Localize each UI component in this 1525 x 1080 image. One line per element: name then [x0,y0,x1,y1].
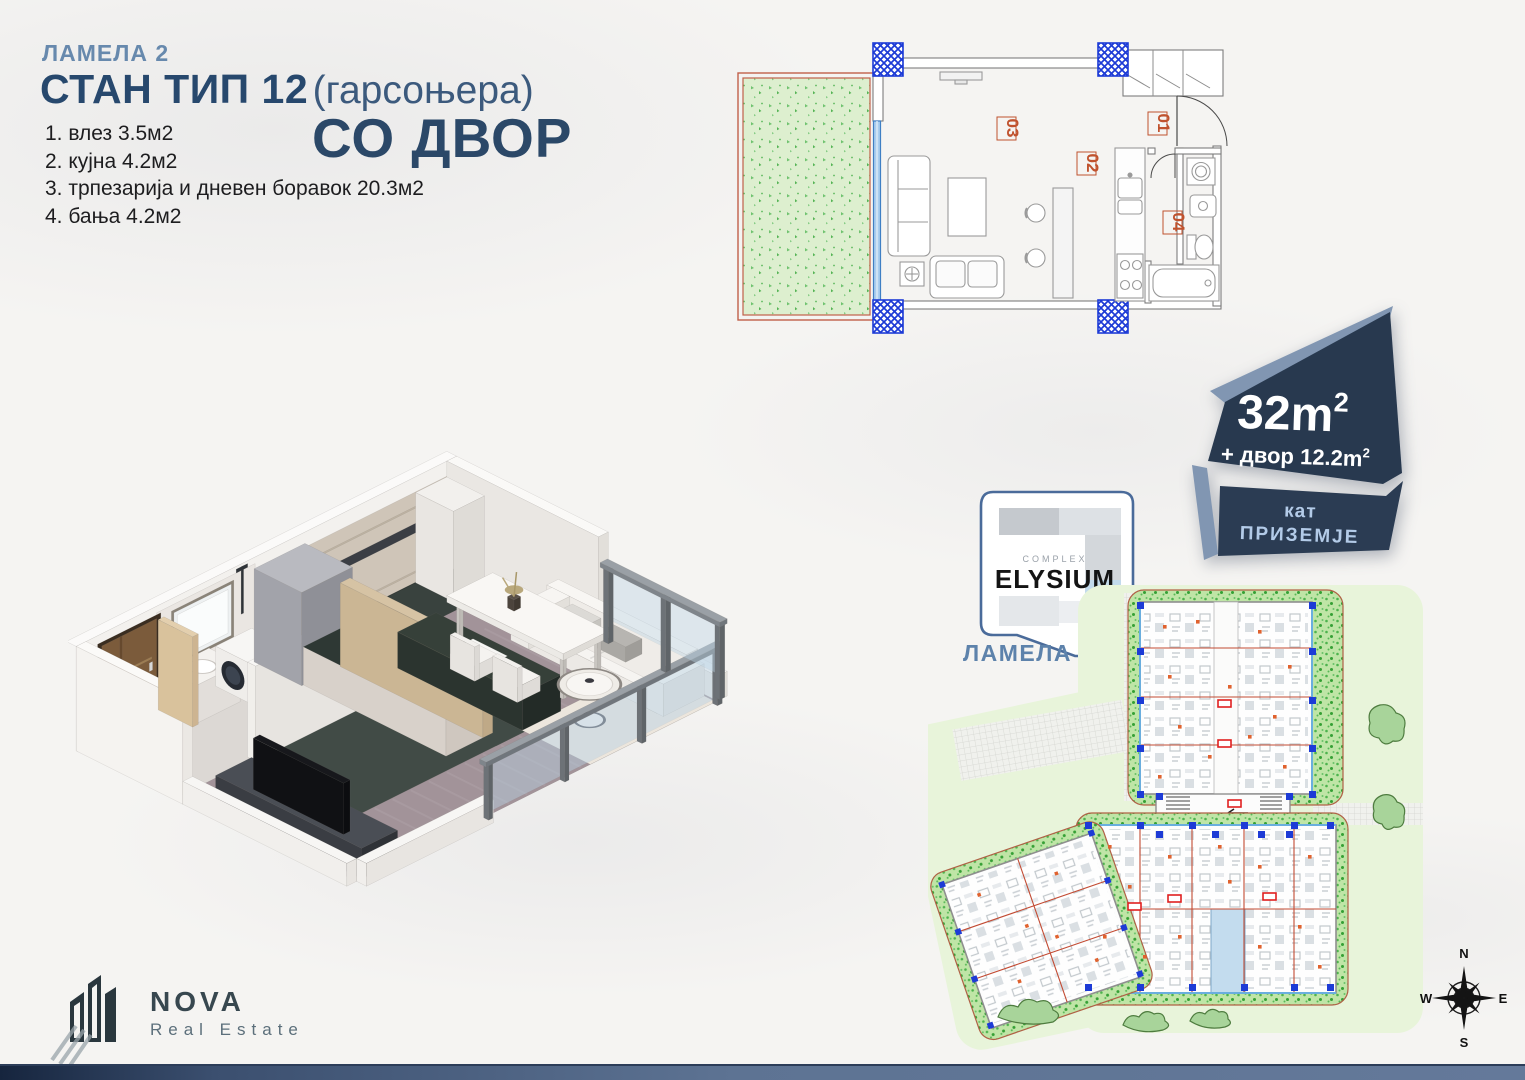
floorplan-furniture [888,72,1219,301]
brand-logo-icon [48,962,148,1067]
compass-n: N [1459,946,1468,961]
svg-text:кат: кат [1284,501,1317,523]
siteplan [928,585,1428,1050]
render-3d-isometric [68,352,738,942]
area-badge: 32m2 + двор 12.2m2 кат ПРИЗЕМЈЕ [1180,298,1425,573]
compass-star [1432,966,1496,1030]
svg-text:03: 03 [1003,119,1022,138]
entry-door [1177,96,1227,146]
apartment-type-title: СТАН ТИП 12 [40,66,308,112]
svg-text:01: 01 [1154,114,1173,133]
bathroom-door [1151,154,1175,178]
room-list-item: 1. влез 3.5м2 [45,120,424,148]
footer-bar [0,1064,1525,1080]
yard-area [738,73,875,320]
svg-text:04: 04 [1169,213,1188,232]
subject-unit-highlight [1211,909,1245,993]
room-list-item: 2. кујна 4.2м2 [45,148,424,176]
svg-text:+ двор 12.2m2: + двор 12.2m2 [1221,440,1371,471]
svg-text:02: 02 [1083,154,1102,173]
compass-e: E [1499,991,1508,1006]
compass-w: W [1420,991,1433,1006]
lamela-heading: ЛАМЕЛА 2 [42,40,169,67]
logo-complex-label: COMPLEX [1022,554,1087,564]
svg-text:ПРИЗЕМЈЕ: ПРИЗЕМЈЕ [1239,523,1359,548]
room-list-item: 4. бања 4.2м2 [45,203,424,231]
brand-tagline: Real Estate [150,1020,304,1040]
badge-bevel-left [1192,465,1218,560]
room-list-item: 3. трпезарија и дневен боравок 20.3м2 [45,175,424,203]
svg-text:32m2: 32m2 [1236,384,1349,443]
compass-rose: N S W E [1418,946,1510,1052]
brand-logo-text: NOVA Real Estate [150,986,304,1040]
compass-s: S [1460,1035,1469,1050]
room-list: 1. влез 3.5м2 2. кујна 4.2м2 3. трпезари… [45,120,424,230]
brand-name: NOVA [150,986,304,1018]
page-root: { "page": { "background": "#f5f4f2", "fo… [0,0,1525,1080]
building-icon [52,975,116,1067]
